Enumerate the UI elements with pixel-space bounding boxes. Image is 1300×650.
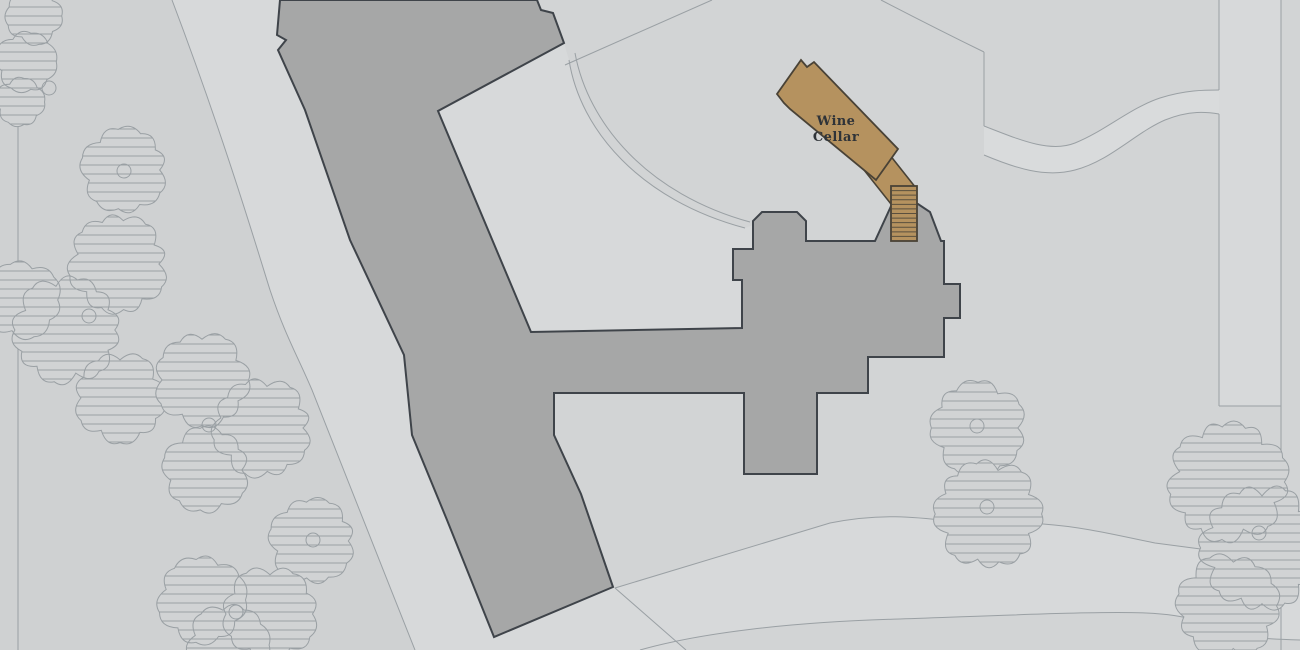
wine-cellar-label-line2: Cellar [813,130,859,145]
wine-cellar-label-line1: Wine [816,114,856,129]
site-plan-canvas: Wine Cellar [0,0,1300,650]
site-plan: Wine Cellar [0,0,1300,650]
right-path-region [1219,0,1281,406]
